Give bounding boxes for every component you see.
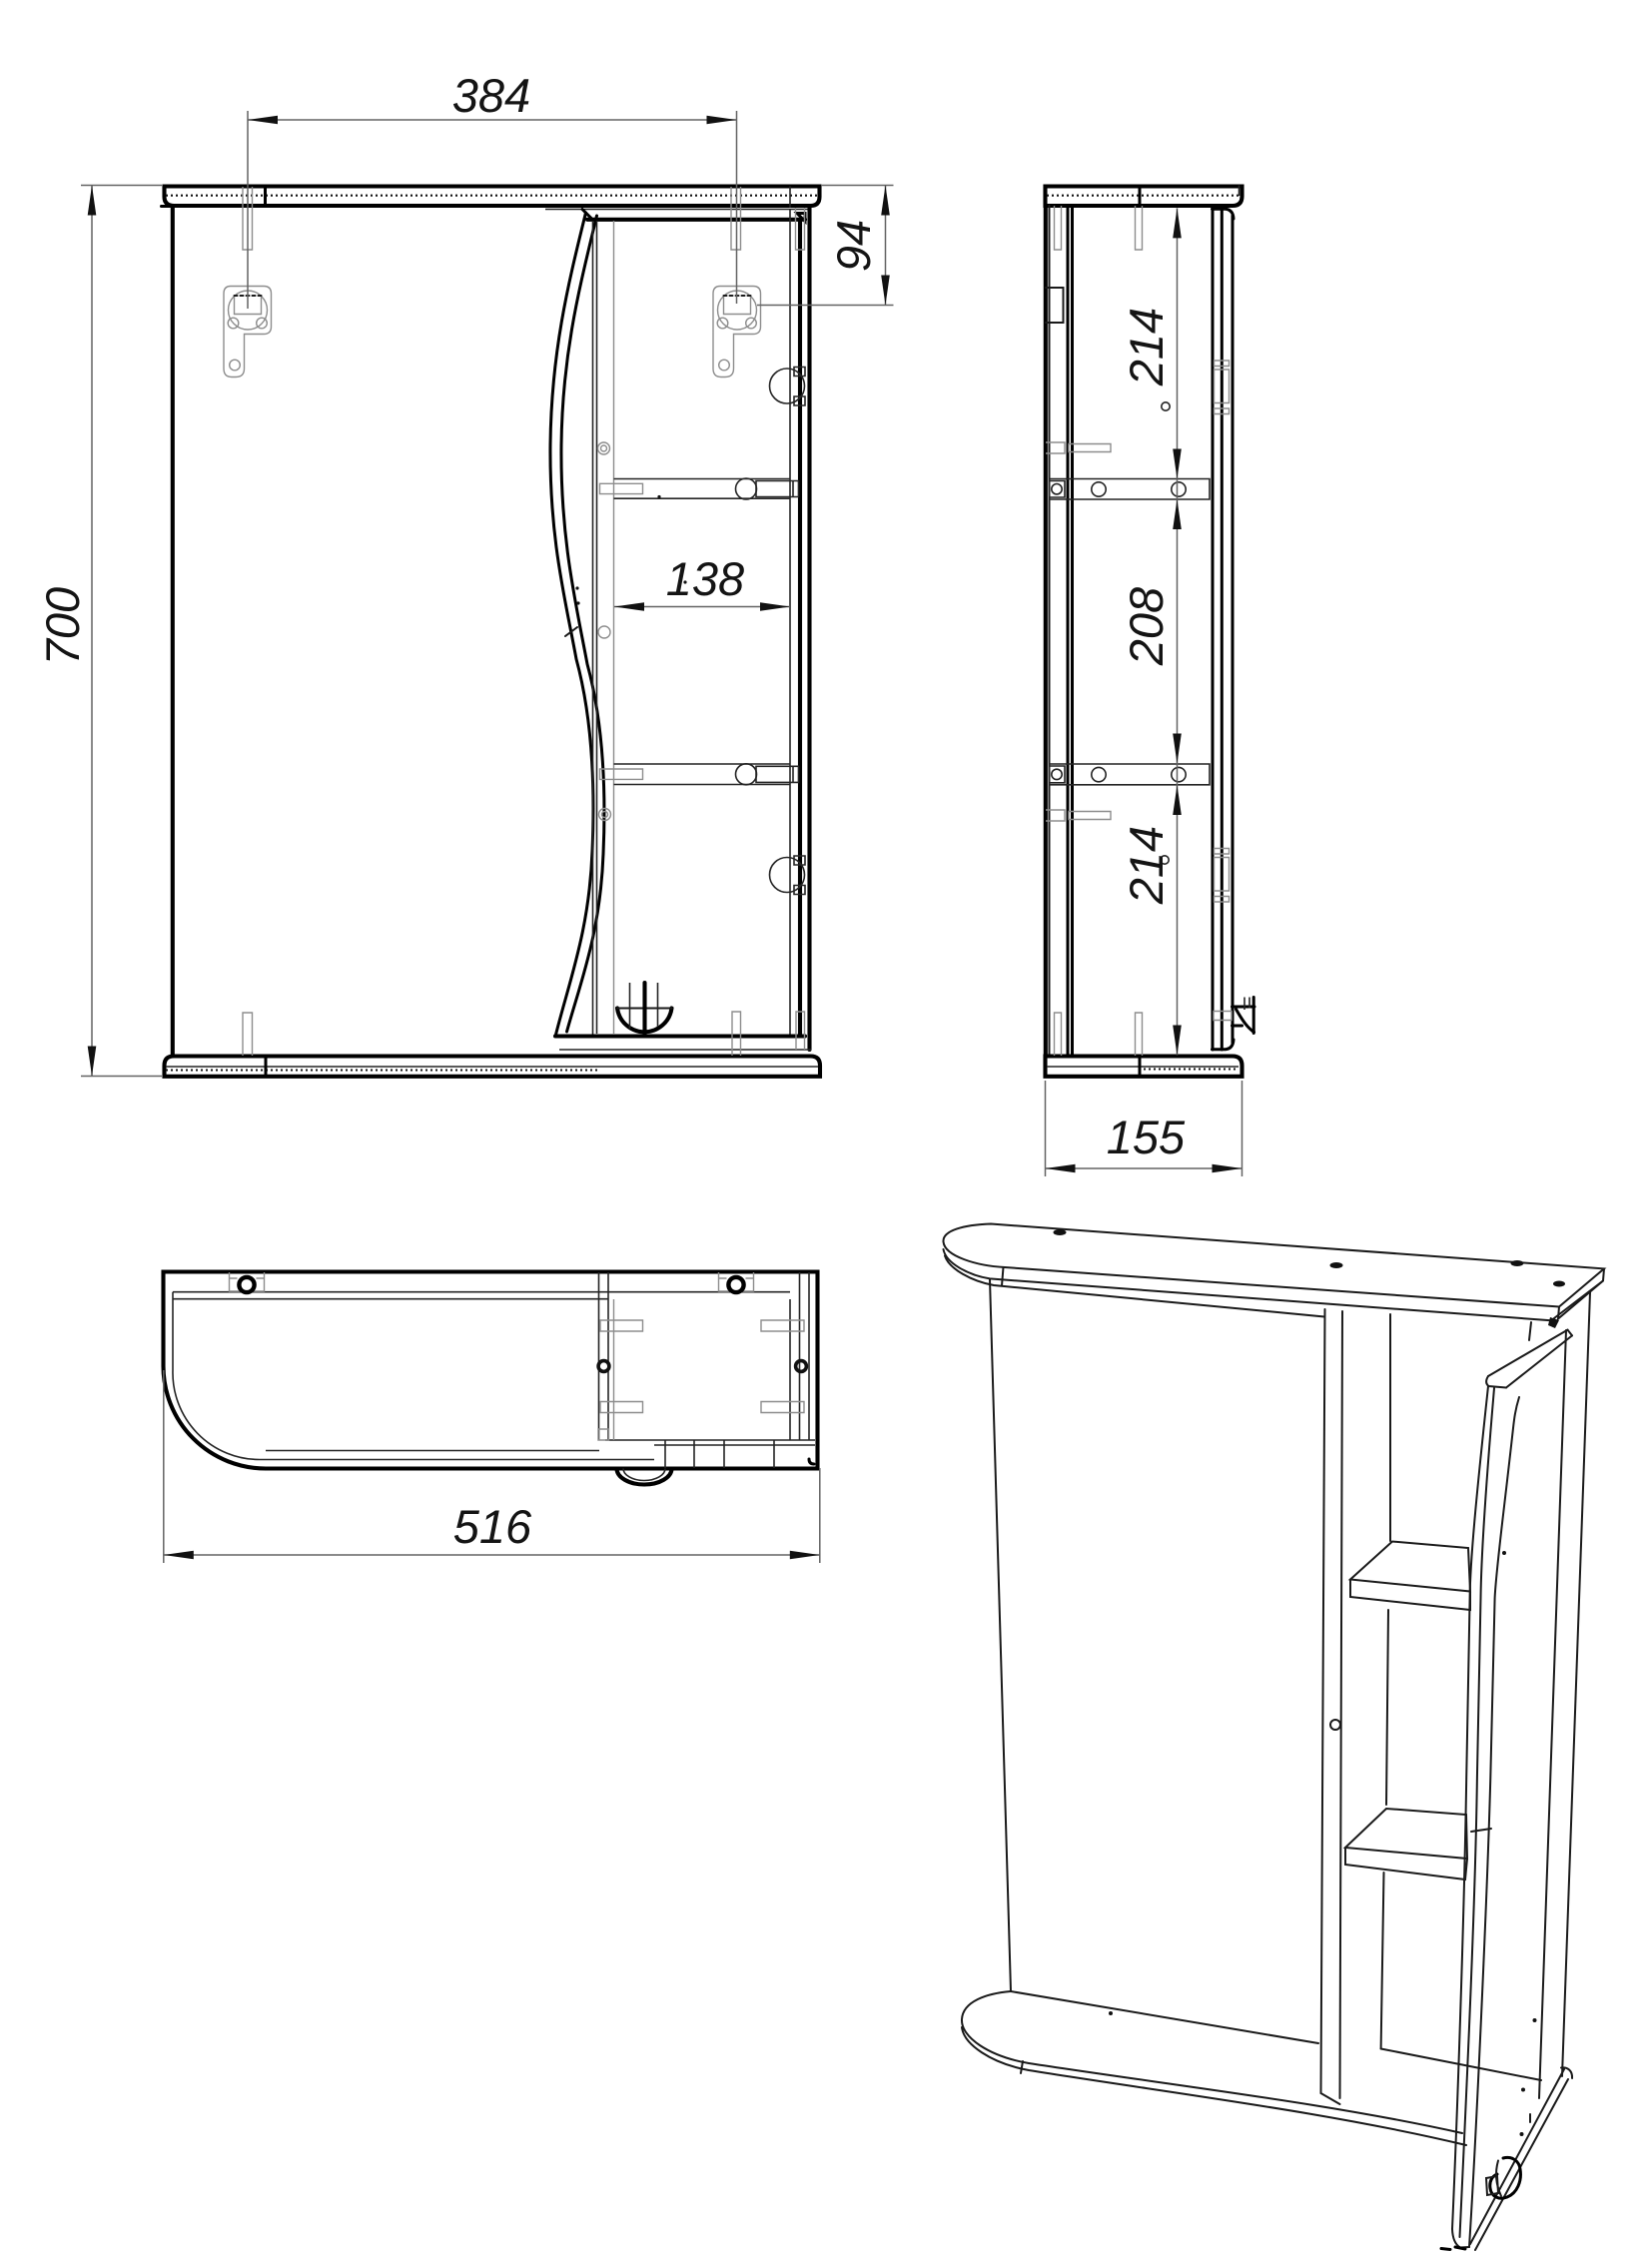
svg-text:138: 138: [666, 552, 744, 605]
svg-text:516: 516: [453, 1500, 532, 1553]
svg-text:214: 214: [1120, 308, 1173, 386]
svg-text:700: 700: [36, 587, 89, 665]
svg-text:208: 208: [1120, 587, 1173, 666]
svg-text:214: 214: [1120, 826, 1173, 905]
svg-text:94: 94: [827, 220, 880, 272]
svg-text:384: 384: [452, 69, 530, 122]
svg-text:155: 155: [1107, 1111, 1186, 1163]
